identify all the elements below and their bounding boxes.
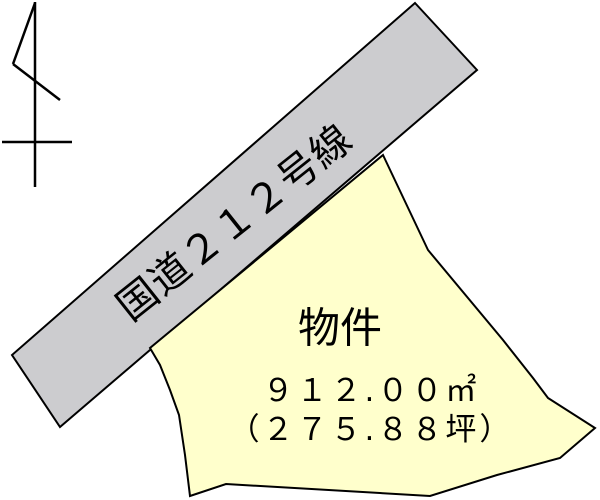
parcel-area-tsubo: （２７５.８８坪） [229, 412, 514, 448]
parcel-map: 国道２１２号線 物件 ９１２.００㎡ （２７５.８８坪） [0, 0, 600, 500]
parcel-area-sqm: ９１２.００㎡ [263, 373, 480, 409]
map-canvas: 国道２１２号線 物件 ９１２.００㎡ （２７５.８８坪） [0, 0, 600, 500]
parcel-label: 物件 [298, 304, 382, 353]
